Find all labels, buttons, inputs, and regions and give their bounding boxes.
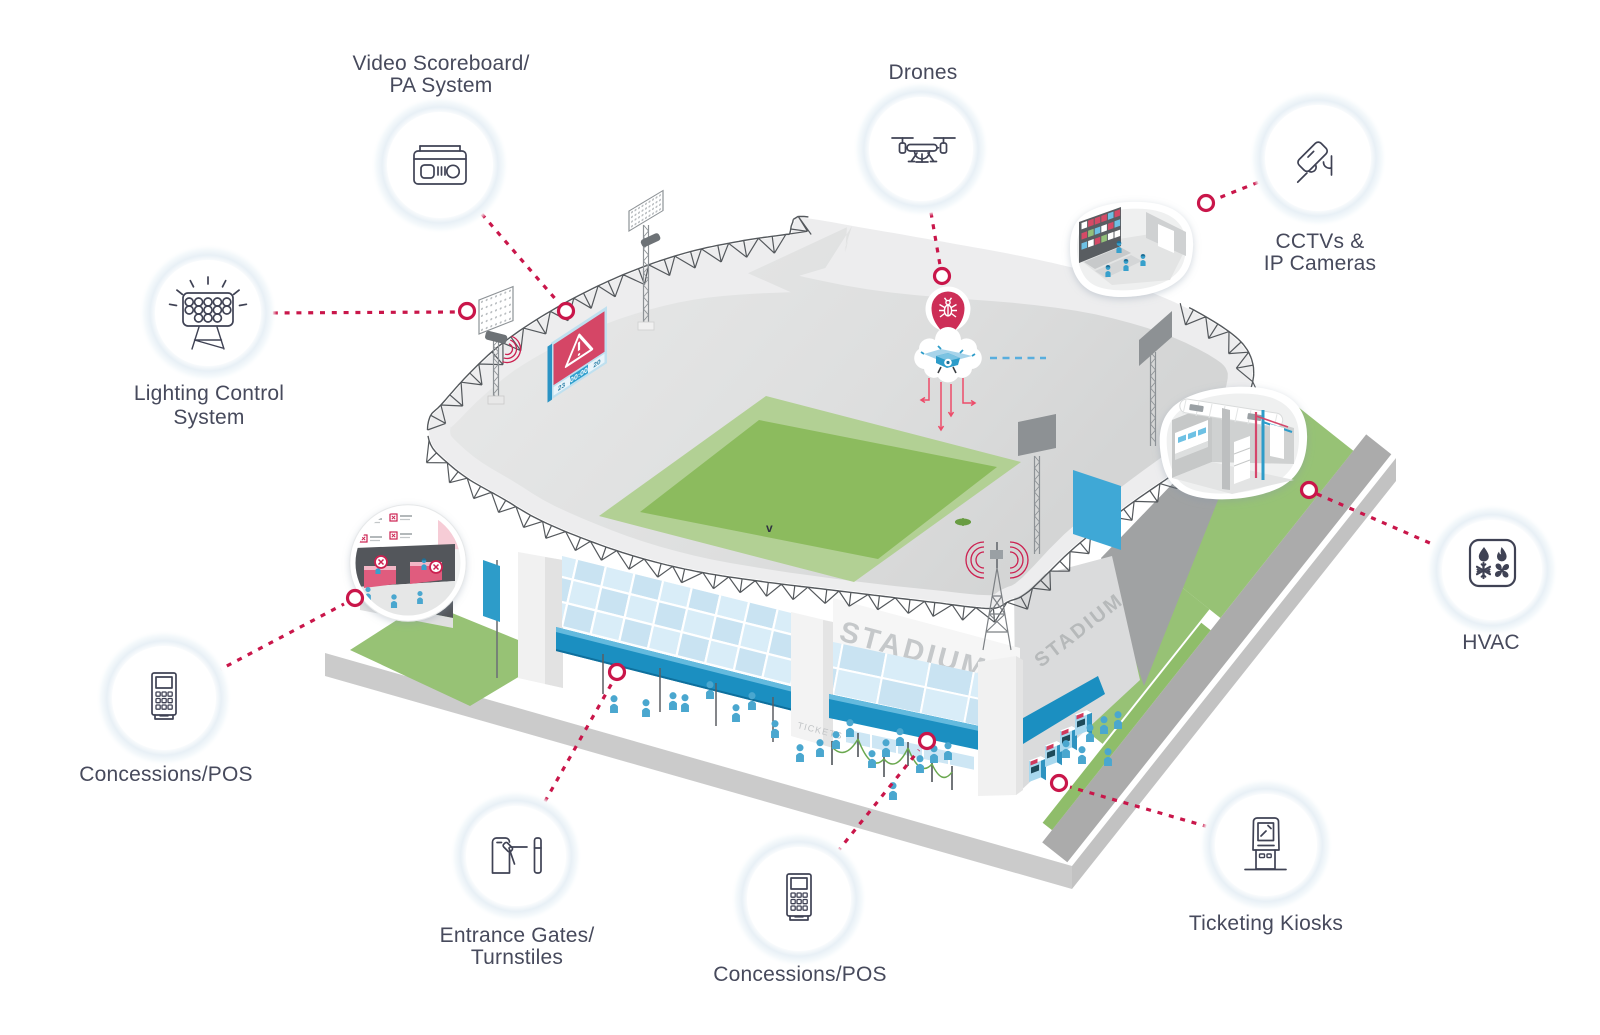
svg-text:System: System (173, 406, 244, 429)
svg-text:HVAC: HVAC (1462, 631, 1520, 654)
svg-text:Entrance Gates/: Entrance Gates/ (440, 924, 595, 947)
svg-text:Turnstiles: Turnstiles (471, 946, 563, 969)
svg-text:Drones: Drones (889, 61, 958, 84)
svg-text:Video Scoreboard/: Video Scoreboard/ (353, 52, 530, 75)
svg-text:v: v (766, 521, 773, 535)
svg-text:Concessions/POS: Concessions/POS (713, 963, 886, 986)
svg-text:IP Cameras: IP Cameras (1264, 252, 1377, 275)
svg-text:PA System: PA System (390, 74, 493, 97)
svg-text:Concessions/POS: Concessions/POS (79, 763, 252, 786)
svg-text:Lighting Control: Lighting Control (134, 382, 284, 405)
svg-text:Ticketing Kiosks: Ticketing Kiosks (1189, 912, 1343, 935)
svg-text:CCTVs &: CCTVs & (1276, 230, 1365, 253)
